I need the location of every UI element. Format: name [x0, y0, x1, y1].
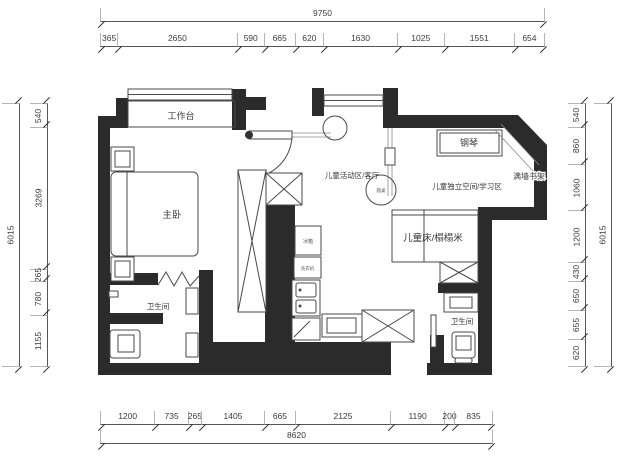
toilet [110, 330, 140, 358]
folding-door [158, 272, 199, 286]
door-hinge [245, 131, 253, 139]
room-label-worktop: 工作台 [167, 110, 194, 121]
room-label-master-bedroom: 主卧 [162, 209, 182, 221]
washing-machine: 洗衣机 [294, 257, 321, 278]
bathroom-door-panel [431, 315, 436, 347]
washing-machine-label: 洗衣机 [301, 265, 315, 272]
stool [323, 116, 347, 140]
window-top-middle [324, 95, 383, 106]
sliding-door-panel [186, 333, 198, 357]
toilet [452, 332, 475, 363]
fridge-label: 冰箱 [303, 238, 313, 245]
round-table-label: 圆桌 [377, 187, 386, 194]
room-label-kids-bed: 儿童床/榻榻米 [403, 232, 463, 244]
sliding-partition [385, 128, 395, 196]
floor-plan-canvas: 圆桌 冰箱 洗衣机 [0, 0, 640, 465]
corner-counter [292, 318, 320, 340]
master-bed [111, 172, 198, 256]
floor-plan-page: 9750 3652650590665620163010251551654 120… [0, 0, 640, 465]
bathroom-right-sink [444, 293, 478, 312]
cabinet-x [266, 173, 302, 205]
window-top-left [128, 89, 232, 100]
room-label-kids-activity: 儿童活动区/客厅 [325, 170, 380, 180]
wardrobe [238, 170, 266, 312]
bath-fixture [109, 291, 118, 297]
room-label-bathroom-right: 卫生间 [451, 316, 474, 326]
kitchen-sink [292, 280, 320, 316]
room-label-bathroom-left: 卫生间 [147, 301, 170, 311]
nightstand [111, 257, 134, 281]
room-label-kids-study: 儿童独立空间/学习区 [432, 181, 502, 191]
nightstand [111, 147, 134, 171]
cabinet-x [440, 262, 478, 283]
stove-counter [322, 314, 362, 337]
cabinet-x [362, 310, 414, 342]
fridge: 冰箱 [295, 226, 321, 255]
room-label-piano: 钢琴 [460, 137, 478, 148]
room-label-wall-bookshelf: 满墙书架 [513, 171, 545, 181]
sliding-door-panel [186, 288, 198, 314]
